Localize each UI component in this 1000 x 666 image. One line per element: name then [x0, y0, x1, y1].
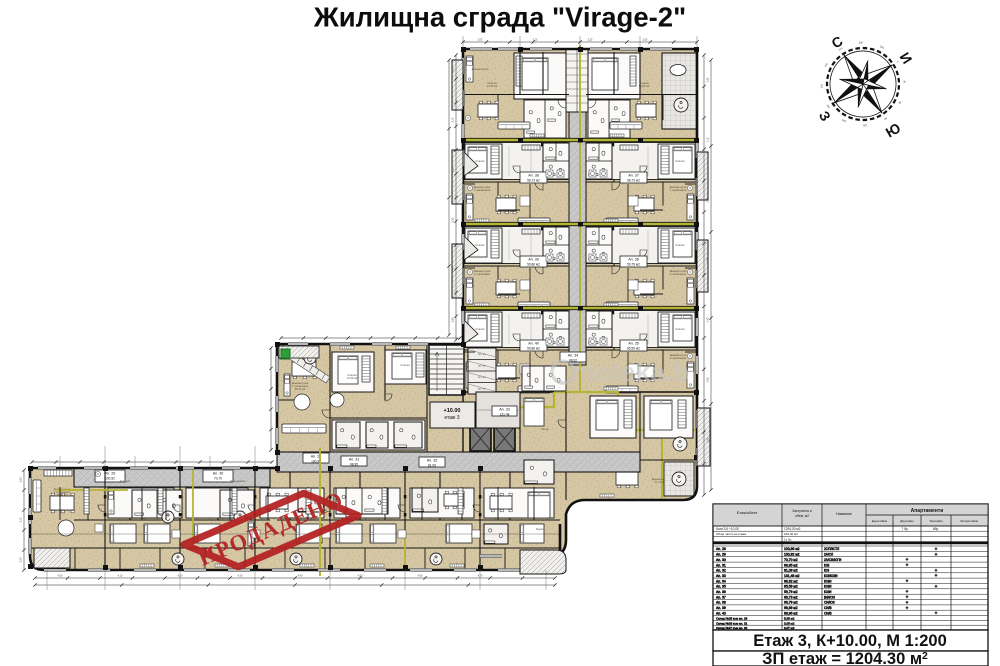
svg-text:100,92: 100,92	[105, 476, 115, 480]
svg-text:11 бр.: 11 бр.	[784, 537, 792, 541]
svg-text:2,15: 2,15	[707, 137, 710, 142]
svg-text:58,73 м2: 58,73 м2	[627, 178, 640, 182]
svg-text:ЮЗ: ЮЗ	[824, 569, 829, 573]
svg-text:2А/СЛ: 2А/СЛ	[824, 553, 833, 557]
svg-text:68,73 м2: 68,73 м2	[784, 595, 798, 599]
svg-text:Ап. 32: Ап. 32	[427, 459, 438, 463]
svg-text:85,59 м2: 85,59 м2	[627, 346, 640, 350]
svg-text:2СП/3СТЛ: 2СП/3СТЛ	[824, 547, 839, 551]
svg-text:ЮЗИ: ЮЗИ	[824, 590, 832, 594]
svg-text:66,79 м2: 66,79 м2	[784, 601, 798, 605]
svg-text:скл. ап.: скл. ап.	[478, 353, 487, 356]
svg-text:Ап. 33: Ап. 33	[499, 408, 510, 412]
svg-text:Ап. 28: Ап. 28	[716, 547, 726, 551]
svg-text:300: 300	[859, 40, 864, 44]
svg-text:ЮЗИ: ЮЗИ	[824, 585, 832, 589]
svg-text:4,00: 4,00	[58, 575, 63, 578]
svg-text:Ап. 32: Ап. 32	[716, 569, 726, 573]
svg-text:169,40 м2: 169,40 м2	[784, 532, 798, 536]
svg-text:Етаж 3, К+10.00, М 1:200: Етаж 3, К+10.00, М 1:200	[753, 632, 947, 650]
svg-text:2,55: 2,55	[707, 377, 710, 382]
svg-text:3,50: 3,50	[452, 317, 455, 322]
svg-text:2,25: 2,25	[707, 197, 710, 202]
svg-text:3,20: 3,20	[20, 557, 23, 562]
svg-text:59,86 м2: 59,86 м2	[527, 346, 540, 350]
svg-text:Ап. 30: Ап. 30	[716, 558, 726, 562]
svg-text:88,86 м2: 88,86 м2	[784, 611, 798, 615]
svg-text:60: 60	[897, 101, 902, 106]
svg-text:6бр.: 6бр.	[933, 527, 939, 531]
svg-text:И: И	[897, 49, 916, 66]
svg-text:100,86 м2: 100,86 м2	[784, 547, 800, 551]
svg-text:Едностайни: Едностайни	[872, 519, 888, 523]
svg-text:+10.00: +10.00	[444, 408, 461, 414]
svg-text:Ап. 38: Ап. 38	[528, 174, 539, 178]
svg-text:330: 330	[879, 44, 885, 50]
svg-text:етаж 3: етаж 3	[444, 415, 459, 421]
svg-text:120: 120	[862, 123, 867, 127]
svg-text:Кота 3,К +10,00: Кота 3,К +10,00	[716, 527, 739, 531]
svg-text:3,35: 3,35	[643, 39, 648, 42]
svg-text:7 бр.: 7 бр.	[901, 527, 908, 531]
svg-text:4,60: 4,60	[418, 575, 423, 578]
svg-text:70,70: 70,70	[214, 476, 222, 480]
svg-text:Склад №26 към ап. 31: Склад №26 към ап. 31	[716, 621, 748, 625]
svg-text:ЮЗИ: ЮЗИ	[824, 579, 832, 583]
svg-text:3,15: 3,15	[533, 39, 538, 42]
svg-text:3,10: 3,10	[452, 117, 455, 122]
svg-text:3,10: 3,10	[20, 517, 23, 522]
svg-text:Ап. 40: Ап. 40	[528, 342, 539, 346]
svg-text:Спалня: Спалня	[400, 363, 410, 367]
svg-text:Ап. 29: Ап. 29	[716, 553, 726, 557]
svg-text:Ап. 40: Ап. 40	[716, 611, 726, 615]
svg-text:210: 210	[819, 83, 823, 88]
svg-text:Етаж/обект: Етаж/обект	[737, 510, 758, 515]
svg-text:1294,00 м2: 1294,00 м2	[784, 527, 801, 531]
svg-text:3,00: 3,00	[20, 477, 23, 482]
svg-text:СИ/В: СИ/В	[824, 611, 832, 615]
svg-text:Жилищна сграда "Virage-2": Жилищна сграда "Virage-2"	[313, 2, 686, 33]
svg-text:2,35: 2,35	[707, 257, 710, 262]
svg-text:moteka.b: moteka.b	[571, 357, 690, 387]
svg-text:Спалня: Спалня	[475, 159, 485, 163]
svg-text:4,30: 4,30	[238, 575, 243, 578]
svg-text:3,40: 3,40	[452, 267, 455, 272]
svg-text:14,22 м2: 14,22 м2	[487, 84, 498, 88]
svg-text:Ап. 36: Ап. 36	[628, 258, 639, 262]
svg-text:обем, м2: обем, м2	[795, 514, 809, 518]
svg-text:Ап. 36: Ап. 36	[716, 590, 726, 594]
svg-text:Ю: Ю	[883, 119, 904, 140]
svg-text:100,92 м2: 100,92 м2	[784, 553, 800, 557]
svg-text:скл. ап.: скл. ап.	[478, 376, 487, 379]
svg-text:4,50: 4,50	[358, 575, 363, 578]
svg-text:4,70: 4,70	[478, 575, 483, 578]
svg-text:85,59 м2: 85,59 м2	[784, 585, 798, 589]
svg-text:131,48: 131,48	[500, 412, 510, 416]
svg-text:Ап. 39: Ап. 39	[716, 606, 726, 610]
svg-text:Апартаменти: Апартаменти	[911, 508, 944, 514]
svg-text:30: 30	[902, 80, 906, 84]
svg-text:Ап. 37: Ап. 37	[628, 174, 639, 178]
svg-text:Ап. 35: Ап. 35	[628, 342, 639, 346]
svg-text:3,30: 3,30	[452, 217, 455, 222]
svg-text:ЮЗ/ЮЗИ: ЮЗ/ЮЗИ	[824, 574, 838, 578]
svg-text:2,45: 2,45	[707, 317, 710, 322]
svg-text:Тристайни: Тристайни	[929, 519, 943, 523]
svg-text:и трапезария: и трапезария	[474, 273, 491, 276]
svg-text:Килер: Килер	[541, 427, 549, 431]
svg-text:99,89 м2: 99,89 м2	[784, 606, 798, 610]
svg-text:Ап. 29: Ап. 29	[105, 472, 116, 476]
svg-text:70,70 м2: 70,70 м2	[784, 558, 798, 562]
svg-text:59,79 м2: 59,79 м2	[784, 590, 798, 594]
svg-text:Ап. 31: Ап. 31	[716, 563, 726, 567]
svg-text:36,23 м2: 36,23 м2	[295, 387, 306, 391]
svg-text:Название: Название	[836, 512, 852, 516]
svg-text:Ап. 31: Ап. 31	[349, 458, 360, 462]
svg-text:Дневна кухня: Дневна кухня	[472, 67, 489, 71]
svg-text:Ап. 38: Ап. 38	[716, 601, 726, 605]
svg-text:81,09 м2: 81,09 м2	[784, 569, 798, 573]
svg-text:90: 90	[883, 116, 888, 121]
svg-text:СИ/В: СИ/В	[824, 606, 832, 610]
svg-text:4,10: 4,10	[118, 575, 123, 578]
svg-text:З: З	[816, 108, 834, 124]
svg-text:36,05 м2: 36,05 м2	[57, 493, 68, 497]
svg-text:240: 240	[823, 62, 829, 68]
svg-text:Общи части на етажа: Общи части на етажа	[716, 532, 746, 536]
svg-text:и трапезария: и трапезария	[474, 189, 491, 192]
svg-text:Ап. 30: Ап. 30	[213, 472, 224, 476]
svg-text:59,86 м2: 59,86 м2	[527, 262, 540, 266]
svg-text:3,00: 3,00	[452, 67, 455, 72]
svg-text:4,20: 4,20	[178, 575, 183, 578]
svg-text:Ап. 35: Ап. 35	[716, 585, 726, 589]
svg-text:ЮВ: ЮВ	[824, 563, 829, 567]
svg-text:С: С	[829, 33, 846, 52]
svg-text:3,20: 3,20	[452, 167, 455, 172]
svg-text:Четиристайни: Четиристайни	[960, 519, 979, 523]
svg-text:2,65: 2,65	[707, 437, 710, 442]
svg-text:Ап. 39: Ап. 39	[528, 258, 539, 262]
svg-text:СИ/ЮЗ: СИ/ЮЗ	[824, 601, 835, 605]
svg-text:Спалня: Спалня	[675, 327, 685, 331]
svg-text:3,05: 3,05	[478, 39, 483, 42]
svg-text:58,73 м2: 58,73 м2	[527, 178, 540, 182]
svg-text:Спалня: Спалня	[475, 327, 485, 331]
svg-text:и трапезария: и трапезария	[670, 189, 687, 192]
svg-text:ЗП етаж = 1204.30 м2: ЗП етаж = 1204.30 м2	[762, 650, 928, 666]
svg-text:98,95: 98,95	[350, 462, 358, 466]
svg-text:скл. ап.: скл. ап.	[478, 388, 487, 391]
svg-text:3,05 м2: 3,05 м2	[784, 621, 795, 625]
svg-text:Двустайни: Двустайни	[900, 519, 914, 523]
svg-text:Склад №25 към ап. 29: Склад №25 към ап. 29	[716, 617, 748, 621]
svg-text:Коридор: Коридор	[120, 479, 131, 483]
svg-text:и трапезария: и трапезария	[670, 273, 687, 276]
svg-text:2,05: 2,05	[707, 77, 710, 82]
svg-text:4,40: 4,40	[298, 575, 303, 578]
svg-text:Спалня: Спалня	[675, 159, 685, 163]
svg-text:88,92 м2: 88,92 м2	[784, 579, 798, 583]
svg-text:131,48 м2: 131,48 м2	[784, 574, 800, 578]
svg-text:3,25: 3,25	[588, 39, 593, 42]
svg-text:Спалня: Спалня	[675, 243, 685, 247]
svg-text:150: 150	[841, 118, 847, 124]
svg-text:14,06 м2: 14,06 м2	[639, 84, 650, 88]
svg-text:Ап. 34: Ап. 34	[716, 579, 726, 583]
svg-text:81,09: 81,09	[428, 463, 436, 467]
svg-text:Спалня: Спалня	[475, 243, 485, 247]
svg-text:98,95 м2: 98,95 м2	[784, 563, 798, 567]
svg-text:В/И/СИ: В/И/СИ	[824, 595, 835, 599]
svg-text:Преддверие: Преддверие	[230, 479, 246, 483]
svg-text:скл. ап.: скл. ап.	[478, 365, 487, 368]
svg-text:2А/СВ/ЮГИ: 2А/СВ/ЮГИ	[824, 558, 842, 562]
svg-text:13,39 м2: 13,39 м2	[347, 376, 358, 380]
svg-text:5,35 м2: 5,35 м2	[784, 617, 795, 621]
svg-text:59,79 м2: 59,79 м2	[627, 262, 640, 266]
svg-text:Тераса: Тераса	[536, 527, 545, 531]
svg-text:Ап. 33: Ап. 33	[716, 574, 726, 578]
svg-text:Застроена и: Застроена и	[792, 509, 812, 513]
svg-text:Ап. 37: Ап. 37	[716, 595, 726, 599]
